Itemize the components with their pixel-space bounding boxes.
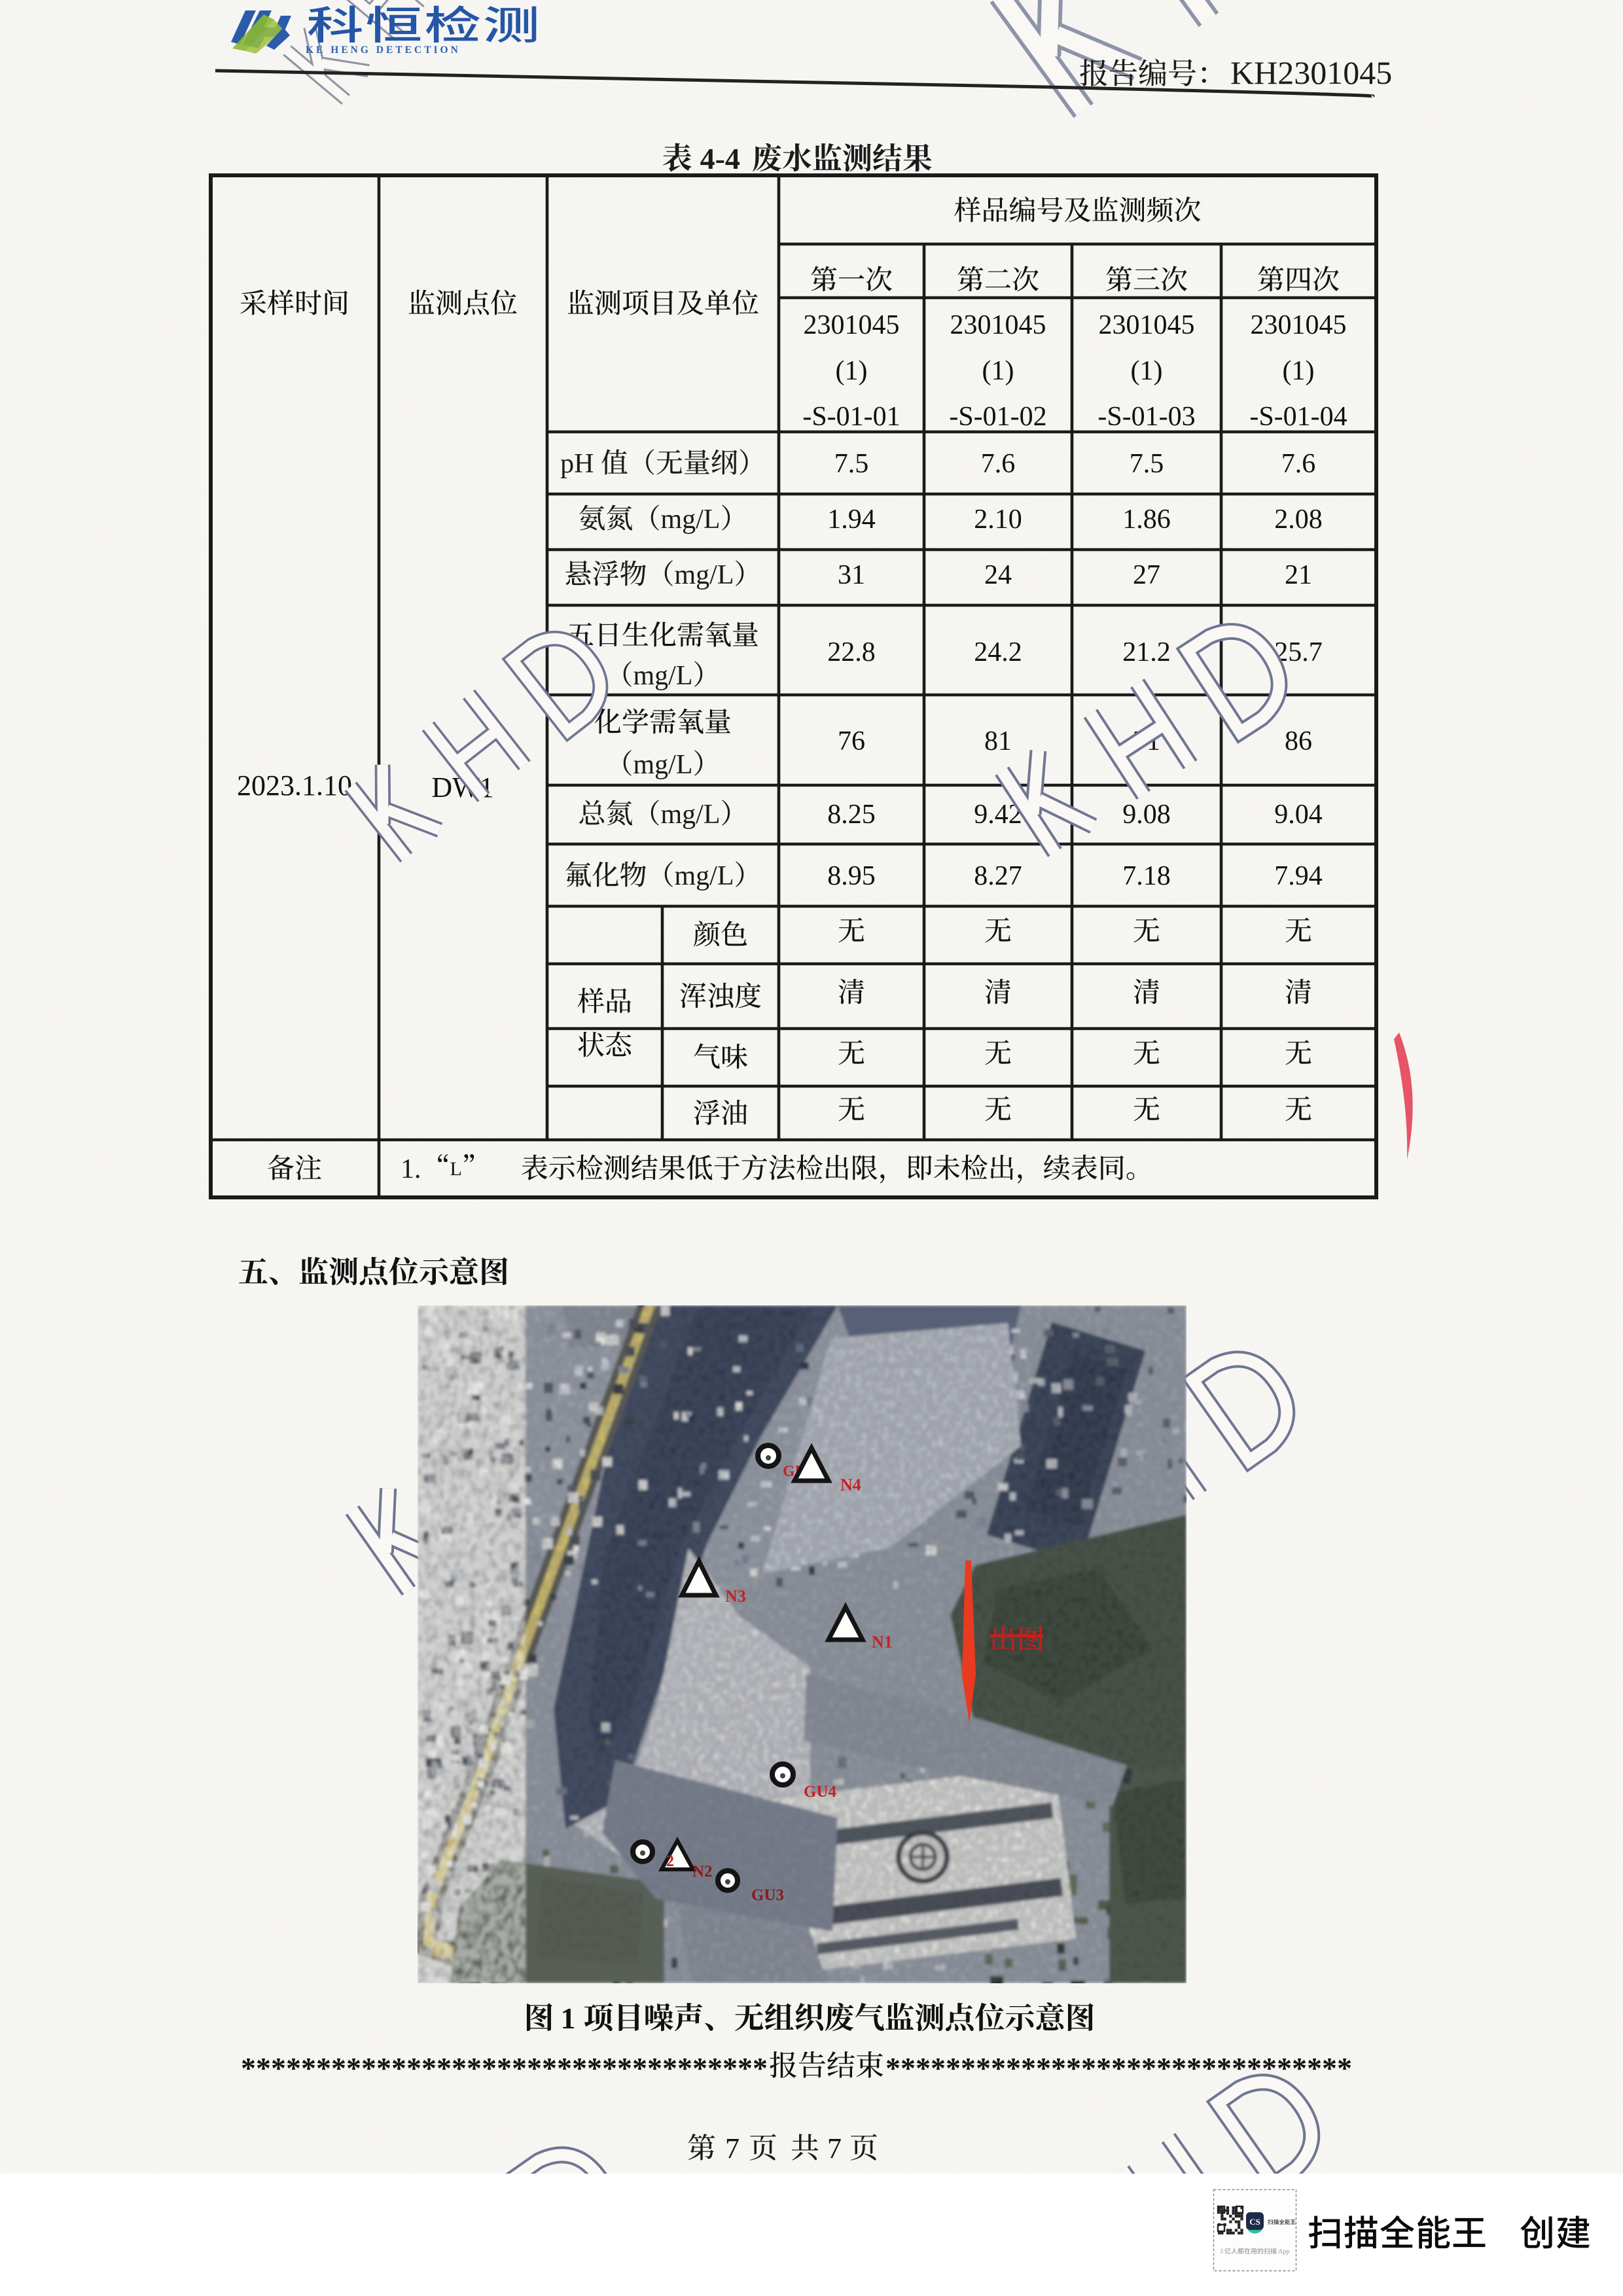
- svg-text:L: L: [450, 1158, 462, 1180]
- svg-text:8.25: 8.25: [827, 800, 876, 830]
- svg-text:1: 1: [561, 2002, 576, 2035]
- svg-text:21: 21: [1285, 560, 1312, 590]
- svg-text:8.27: 8.27: [974, 861, 1022, 891]
- svg-text:7.5: 7.5: [1130, 449, 1164, 479]
- svg-text:76: 76: [838, 726, 865, 756]
- svg-text:24: 24: [984, 560, 1012, 590]
- svg-text:mg/L: mg/L: [633, 750, 693, 780]
- svg-text:mg/L: mg/L: [633, 661, 693, 691]
- svg-text:-S-01-03: -S-01-03: [1097, 402, 1195, 432]
- svg-text:2301045: 2301045: [1251, 310, 1347, 340]
- svg-text:8.95: 8.95: [827, 861, 876, 891]
- svg-text:GU4: GU4: [804, 1783, 837, 1801]
- svg-text:7.94: 7.94: [1274, 861, 1323, 891]
- svg-text:7.5: 7.5: [834, 449, 869, 479]
- svg-text:mg/L: mg/L: [661, 800, 721, 830]
- svg-text:N2: N2: [692, 1863, 713, 1881]
- svg-text:81: 81: [984, 726, 1012, 756]
- svg-text:1.: 1.: [401, 1154, 421, 1184]
- svg-text:GU3: GU3: [751, 1886, 784, 1904]
- svg-text:2.08: 2.08: [1274, 504, 1323, 535]
- svg-text:N3: N3: [725, 1587, 746, 1606]
- svg-text:mg/L: mg/L: [661, 504, 721, 535]
- svg-text:(1): (1): [1283, 356, 1315, 386]
- svg-text:27: 27: [1133, 560, 1160, 590]
- svg-text:******************************: ***********************************: [241, 2051, 768, 2085]
- svg-text:7: 7: [725, 2132, 740, 2164]
- svg-text:2301045: 2301045: [1099, 310, 1195, 340]
- svg-text:KH2301045: KH2301045: [1230, 54, 1392, 91]
- svg-text:22.8: 22.8: [827, 637, 876, 667]
- svg-text:-S-01-02: -S-01-02: [949, 402, 1046, 432]
- svg-text:1.94: 1.94: [827, 504, 876, 535]
- svg-text:1.86: 1.86: [1122, 504, 1171, 535]
- svg-text:7: 7: [827, 2132, 842, 2164]
- svg-text:2: 2: [666, 1853, 674, 1870]
- svg-text:-S-01-04: -S-01-04: [1249, 402, 1347, 432]
- svg-text:pH: pH: [560, 449, 594, 479]
- svg-text:4-4: 4-4: [700, 142, 740, 175]
- svg-text:9.04: 9.04: [1274, 800, 1323, 830]
- svg-text:24.2: 24.2: [974, 637, 1022, 667]
- svg-text:7.6: 7.6: [1281, 449, 1316, 479]
- svg-text:mg/L: mg/L: [675, 560, 734, 590]
- svg-text:7.6: 7.6: [981, 449, 1016, 479]
- svg-text:App: App: [1278, 2248, 1289, 2255]
- svg-text:2.10: 2.10: [974, 504, 1022, 535]
- svg-text:31: 31: [838, 560, 865, 590]
- svg-text:N1: N1: [872, 1633, 893, 1651]
- svg-text:CS: CS: [1249, 2217, 1260, 2227]
- svg-text:mg/L: mg/L: [675, 861, 734, 891]
- svg-text:(1): (1): [1131, 356, 1163, 386]
- svg-text:7.18: 7.18: [1122, 861, 1171, 891]
- svg-text:86: 86: [1285, 726, 1312, 756]
- svg-text:21.2: 21.2: [1122, 637, 1171, 667]
- svg-text:N4: N4: [840, 1475, 861, 1494]
- svg-text:(1): (1): [982, 356, 1014, 386]
- svg-text:9.08: 9.08: [1122, 800, 1171, 830]
- svg-text:2301045: 2301045: [950, 310, 1046, 340]
- svg-text:KE HENG DETECTION: KE HENG DETECTION: [306, 44, 461, 56]
- svg-text:3: 3: [1220, 2248, 1223, 2255]
- svg-text:-S-01-01: -S-01-01: [802, 402, 900, 432]
- svg-text:2023.1.10: 2023.1.10: [237, 769, 352, 802]
- svg-text:(1): (1): [836, 356, 868, 386]
- svg-text:2301045: 2301045: [804, 310, 900, 340]
